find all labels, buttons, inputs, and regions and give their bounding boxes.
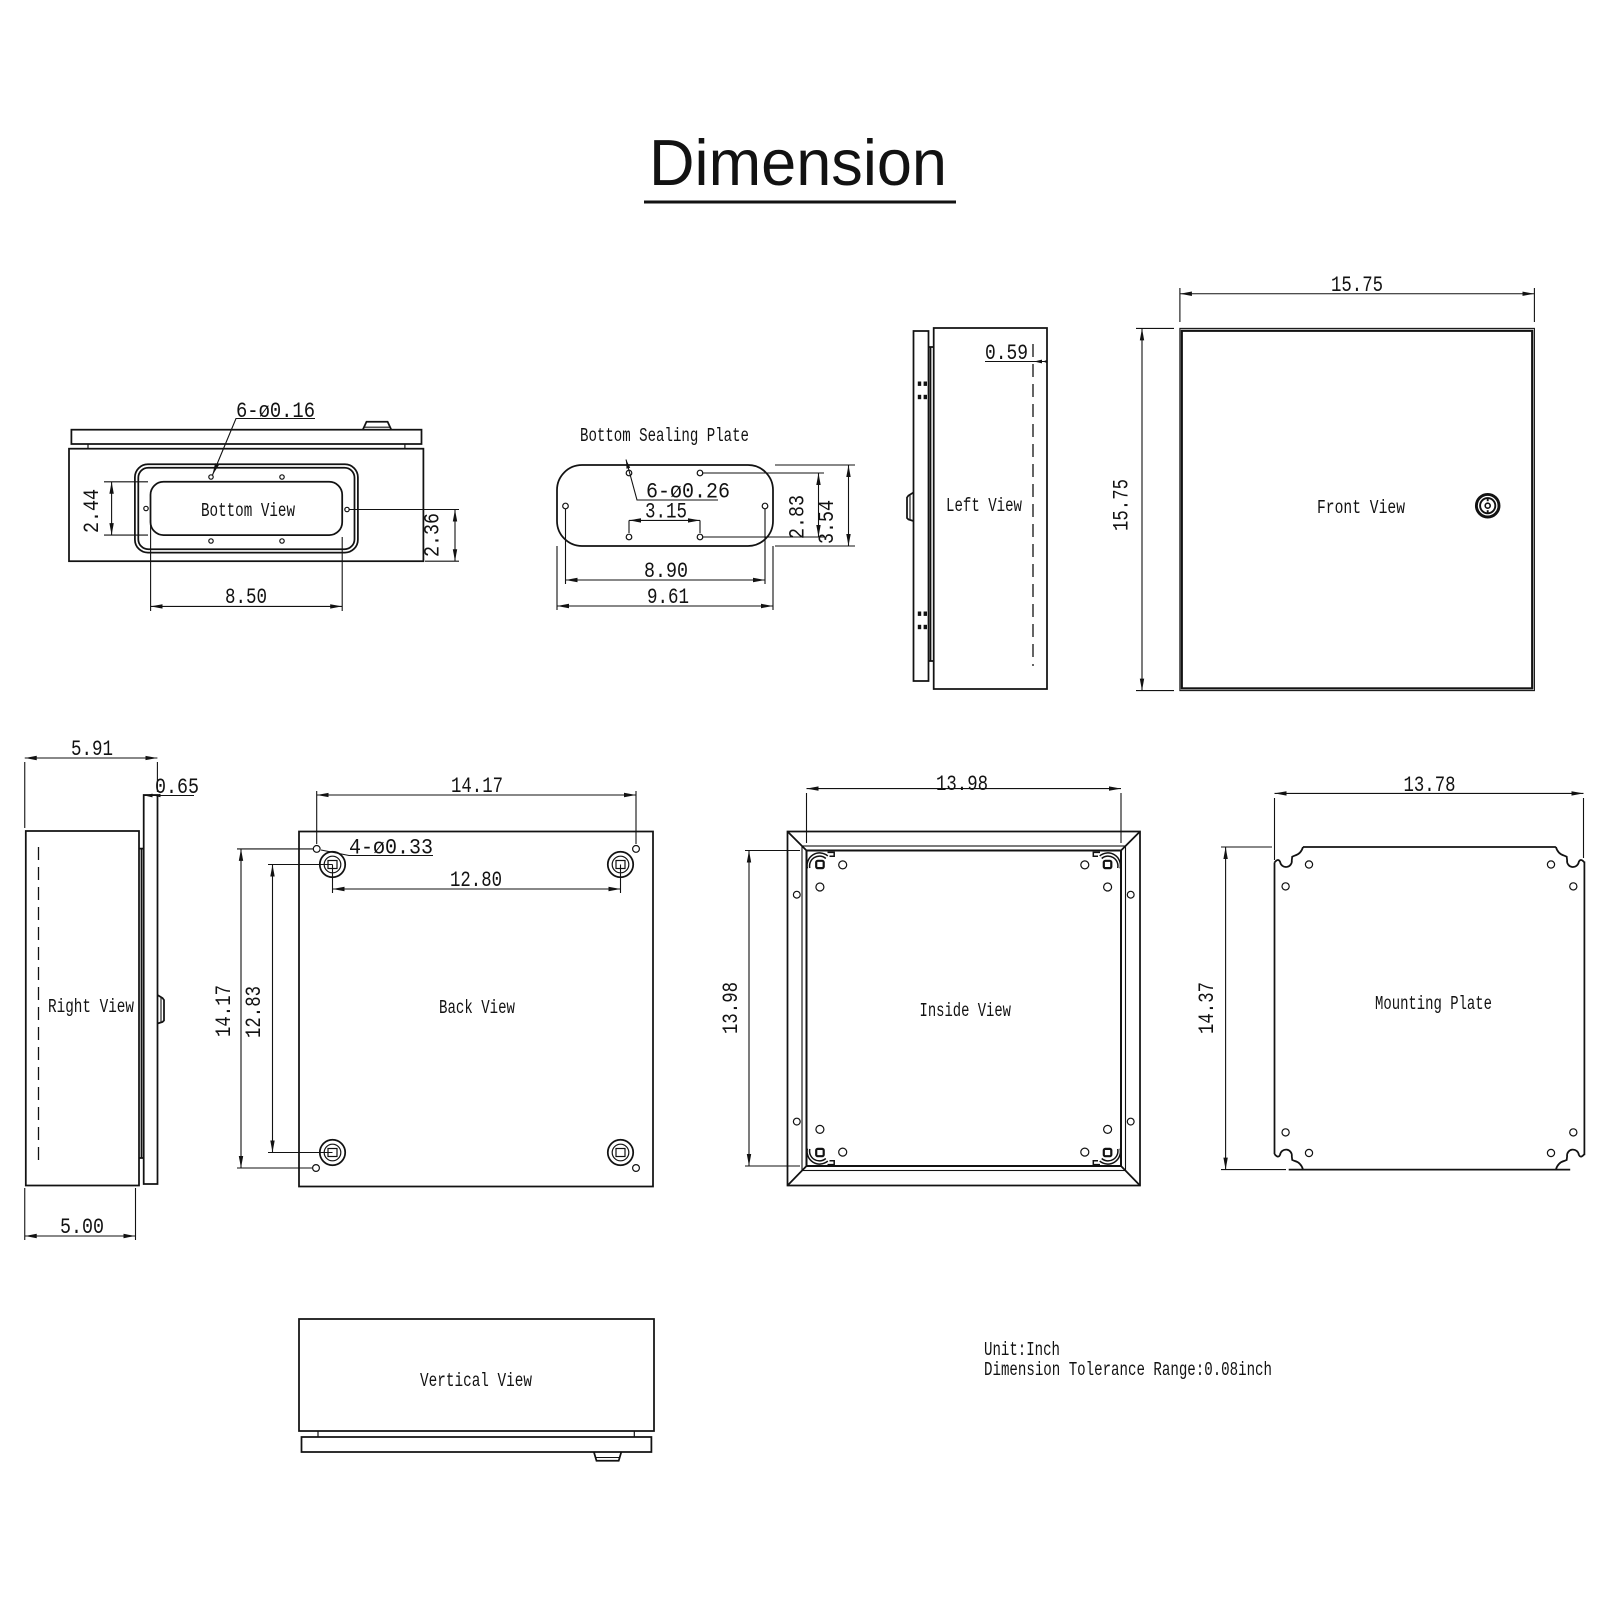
svg-text:Inside View: Inside View	[920, 1000, 1012, 1022]
svg-text:9.61: 9.61	[647, 585, 689, 610]
svg-text:14.17: 14.17	[451, 774, 503, 799]
svg-text:Mounting Plate: Mounting Plate	[1375, 993, 1492, 1015]
svg-text:13.78: 13.78	[1404, 773, 1456, 798]
svg-text:8.50: 8.50	[225, 585, 267, 610]
svg-text:3.15: 3.15	[645, 500, 687, 525]
svg-text:Front View: Front View	[1317, 497, 1405, 519]
svg-text:12.80: 12.80	[450, 868, 502, 893]
svg-text:6-ø0.16: 6-ø0.16	[236, 399, 315, 424]
svg-text:15.75: 15.75	[1331, 273, 1383, 298]
svg-text:2.44: 2.44	[80, 489, 105, 533]
svg-text:Left View: Left View	[946, 495, 1022, 517]
svg-text:2.83: 2.83	[786, 495, 811, 539]
svg-text:14.17: 14.17	[212, 985, 237, 1037]
svg-text:Bottom View: Bottom View	[201, 500, 295, 522]
svg-text:Right View: Right View	[48, 996, 134, 1018]
svg-text:13.98: 13.98	[719, 982, 744, 1034]
svg-text:Unit:Inch: Unit:Inch	[984, 1339, 1060, 1361]
svg-text:5.91: 5.91	[71, 737, 113, 762]
svg-text:5.00: 5.00	[60, 1215, 104, 1240]
svg-text:4-ø0.33: 4-ø0.33	[349, 836, 433, 861]
svg-text:15.75: 15.75	[1110, 479, 1135, 531]
svg-text:Vertical View: Vertical View	[420, 1370, 532, 1392]
svg-text:0.65: 0.65	[155, 775, 199, 800]
svg-text:13.98: 13.98	[936, 772, 988, 797]
svg-text:8.90: 8.90	[644, 559, 688, 584]
svg-text:12.83: 12.83	[242, 986, 267, 1038]
svg-text:Back View: Back View	[439, 997, 515, 1019]
svg-text:2.36: 2.36	[421, 513, 446, 557]
svg-text:0.59: 0.59	[985, 341, 1028, 366]
svg-text:Dimension: Dimension	[649, 126, 947, 199]
svg-text:3.54: 3.54	[815, 500, 840, 544]
svg-text:Bottom Sealing Plate: Bottom Sealing Plate	[580, 425, 749, 447]
svg-text:Dimension Tolerance Range:0.08: Dimension Tolerance Range:0.08inch	[984, 1359, 1272, 1381]
svg-text:14.37: 14.37	[1195, 982, 1220, 1034]
